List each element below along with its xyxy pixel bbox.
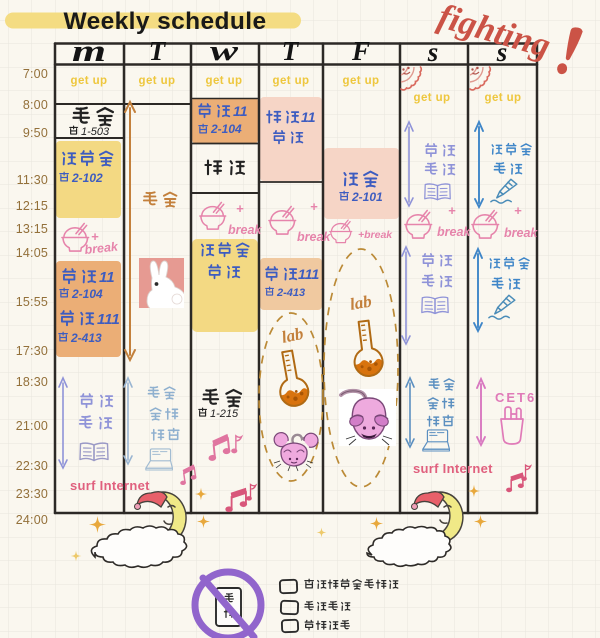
svg-text:13:15: 13:15 — [16, 222, 48, 236]
svg-text:11:30: 11:30 — [17, 173, 48, 187]
svg-text:2-413: 2-413 — [70, 331, 102, 345]
svg-text:14:05: 14:05 — [16, 246, 48, 260]
svg-text:+: + — [448, 203, 456, 218]
svg-text:surf Internet: surf Internet — [70, 478, 150, 493]
svg-text:T: T — [149, 36, 167, 66]
svg-text:surf Internet: surf Internet — [413, 461, 493, 476]
svg-text:11: 11 — [233, 103, 248, 119]
svg-text:24:00: 24:00 — [16, 513, 48, 527]
svg-text:11: 11 — [99, 269, 115, 286]
svg-text:7:00: 7:00 — [23, 67, 48, 81]
svg-text:1-215: 1-215 — [210, 408, 239, 420]
svg-text:T: T — [282, 36, 300, 66]
svg-text:+break: +break — [358, 229, 393, 241]
svg-text:get up: get up — [273, 75, 310, 87]
svg-text:+: + — [514, 203, 522, 218]
svg-text:get up: get up — [414, 92, 451, 104]
svg-text:21:00: 21:00 — [16, 419, 48, 433]
svg-text:8:00: 8:00 — [23, 98, 48, 112]
svg-text:break: break — [437, 225, 471, 239]
svg-text:m: m — [72, 33, 106, 68]
svg-text:+: + — [91, 229, 99, 244]
svg-text:12:15: 12:15 — [16, 199, 48, 213]
svg-text:23:30: 23:30 — [16, 487, 48, 501]
svg-text:11: 11 — [301, 109, 316, 125]
svg-text:17:30: 17:30 — [16, 344, 48, 358]
svg-text:1-503: 1-503 — [81, 126, 110, 138]
svg-text:get up: get up — [343, 75, 380, 87]
svg-text:lab: lab — [348, 291, 373, 313]
svg-text:+: + — [310, 199, 318, 214]
svg-text:111: 111 — [298, 266, 319, 282]
svg-text:s: s — [496, 37, 508, 67]
svg-text:break: break — [297, 230, 331, 244]
svg-text:get up: get up — [139, 75, 176, 87]
svg-text:2-413: 2-413 — [276, 287, 305, 299]
svg-text:get up: get up — [71, 75, 108, 87]
svg-text:111: 111 — [97, 311, 120, 328]
svg-text:F: F — [351, 36, 370, 66]
svg-text:break: break — [504, 226, 538, 240]
svg-text:2-102: 2-102 — [71, 171, 103, 185]
svg-text:get up: get up — [206, 75, 243, 87]
svg-text:w: w — [210, 35, 239, 67]
svg-text:15:55: 15:55 — [16, 295, 48, 309]
svg-text:2-104: 2-104 — [71, 287, 103, 301]
svg-text:break: break — [228, 223, 262, 237]
svg-text:2-101: 2-101 — [351, 190, 383, 204]
svg-text:18:30: 18:30 — [16, 375, 48, 389]
svg-text:9:50: 9:50 — [23, 126, 48, 140]
svg-text:Weekly schedule: Weekly schedule — [63, 8, 266, 35]
svg-text:CET6: CET6 — [495, 390, 536, 405]
svg-text:s: s — [427, 37, 439, 67]
svg-text:get up: get up — [485, 92, 522, 104]
svg-text:2-104: 2-104 — [210, 122, 242, 136]
svg-text:22:30: 22:30 — [16, 459, 48, 473]
svg-text:+: + — [236, 201, 244, 216]
